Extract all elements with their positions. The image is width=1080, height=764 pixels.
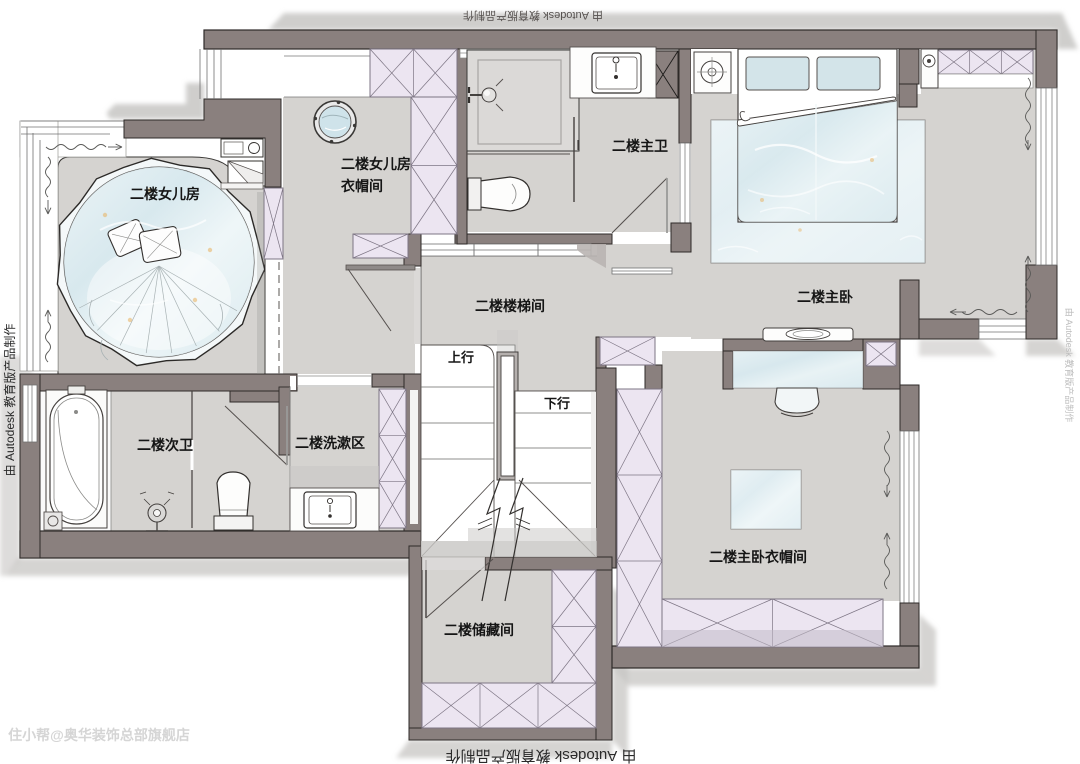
- svg-text:下行: 下行: [544, 396, 570, 411]
- svg-text:二楼次卫: 二楼次卫: [137, 437, 193, 453]
- svg-text:二楼主卧衣帽间: 二楼主卧衣帽间: [709, 549, 807, 565]
- svg-text:上行: 上行: [448, 350, 474, 365]
- svg-text:住小帮@奥华装饰总部旗舰店: 住小帮@奥华装饰总部旗舰店: [8, 727, 190, 743]
- svg-text:二楼储藏间: 二楼储藏间: [444, 622, 514, 638]
- svg-text:二楼洗漱区: 二楼洗漱区: [295, 435, 365, 451]
- svg-text:衣帽间: 衣帽间: [341, 178, 383, 194]
- svg-text:二楼女儿房: 二楼女儿房: [341, 156, 411, 172]
- svg-text:二楼主卫: 二楼主卫: [612, 138, 668, 154]
- svg-text:二楼女儿房: 二楼女儿房: [130, 186, 200, 202]
- svg-text:二楼主卧: 二楼主卧: [797, 289, 853, 305]
- svg-text:由 Autodesk 教育版产品制作: 由 Autodesk 教育版产品制作: [463, 9, 603, 23]
- svg-text:由 Autodesk 教育版产品制作: 由 Autodesk 教育版产品制作: [446, 747, 637, 764]
- svg-text:由 Autodesk 教育版产品制作: 由 Autodesk 教育版产品制作: [1064, 308, 1075, 423]
- svg-text:由 Autodesk 教育版产品制作: 由 Autodesk 教育版产品制作: [2, 324, 17, 477]
- svg-text:二楼楼梯间: 二楼楼梯间: [475, 298, 545, 314]
